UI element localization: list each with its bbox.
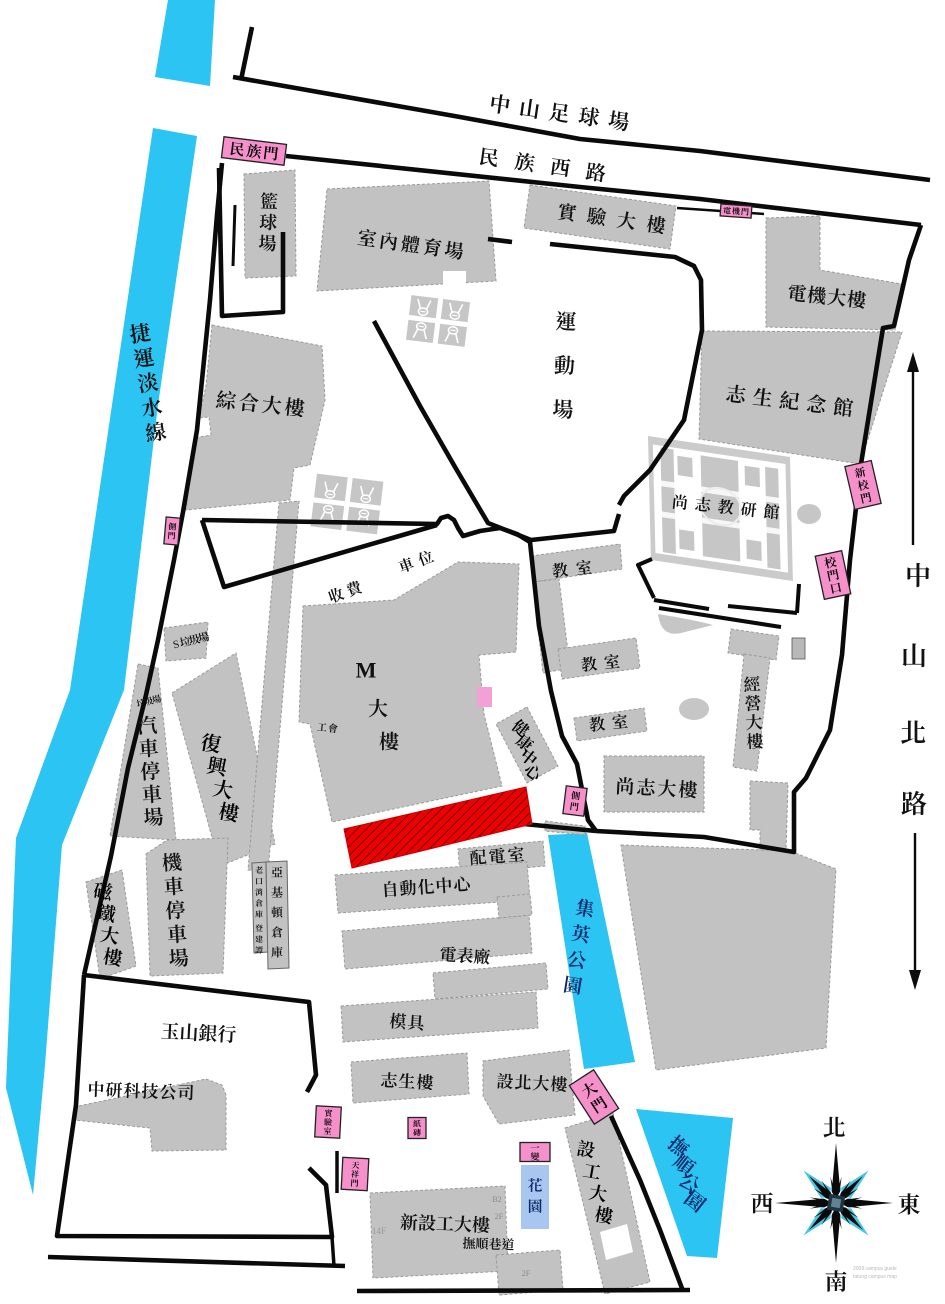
svg-text:14F: 14F bbox=[372, 1226, 386, 1236]
svg-text:2F: 2F bbox=[522, 1269, 531, 1278]
svg-text:M: M bbox=[356, 658, 377, 683]
svg-text:tatung campus map: tatung campus map bbox=[853, 1274, 897, 1280]
svg-text:2009 campus guide: 2009 campus guide bbox=[853, 1266, 897, 1272]
svg-text:2F: 2F bbox=[495, 1212, 504, 1221]
svg-text:B2: B2 bbox=[492, 1195, 501, 1204]
